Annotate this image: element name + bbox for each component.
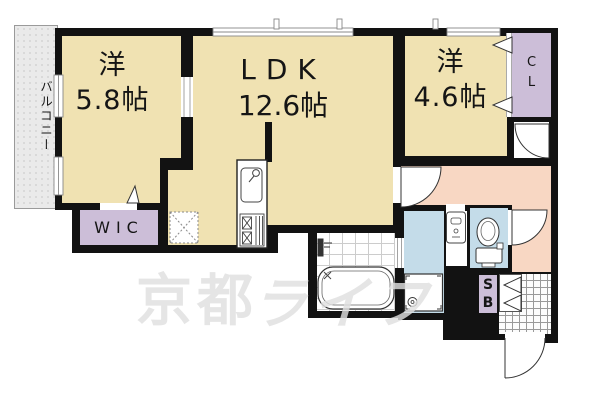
shoe-box-door-triangle bbox=[504, 277, 521, 293]
ldk-hallway-door-arc bbox=[401, 167, 441, 207]
room-label-west-5-8: 洋 5.8帖 bbox=[55, 48, 170, 118]
floorplan-canvas: { "balcony": { "label": "バルコニー" }, "room… bbox=[0, 0, 600, 400]
balcony-label: バルコニー bbox=[17, 56, 53, 176]
bath-door-icon bbox=[395, 238, 404, 268]
refrigerator-space-icon bbox=[170, 212, 198, 243]
shower-fixture-icon bbox=[318, 239, 332, 256]
kitchen-unit bbox=[237, 160, 267, 248]
wic-door-triangle bbox=[127, 186, 139, 203]
kitchen-stub-wall bbox=[265, 122, 272, 162]
toilet-door-arc bbox=[512, 210, 547, 245]
shoe-box-door-triangle bbox=[504, 295, 521, 311]
bedroom-door-arc bbox=[515, 124, 549, 158]
entrance-door bbox=[505, 338, 545, 378]
toilet-icon bbox=[476, 218, 503, 267]
room-label-ldk: LDK 12.6帖 bbox=[208, 52, 358, 125]
wic-label: WIC bbox=[80, 218, 158, 239]
window-icon bbox=[213, 19, 500, 36]
room-label-west-4-6: 洋 4.6帖 bbox=[398, 45, 503, 115]
bathtub-icon bbox=[318, 267, 394, 309]
shoe-box-sb-label: S B bbox=[478, 277, 498, 312]
sliding-door-icon bbox=[181, 77, 193, 117]
closet-cl-label: C L bbox=[512, 53, 551, 93]
washing-machine-pan-icon bbox=[405, 274, 443, 311]
vanity-basin-icon bbox=[447, 212, 466, 243]
